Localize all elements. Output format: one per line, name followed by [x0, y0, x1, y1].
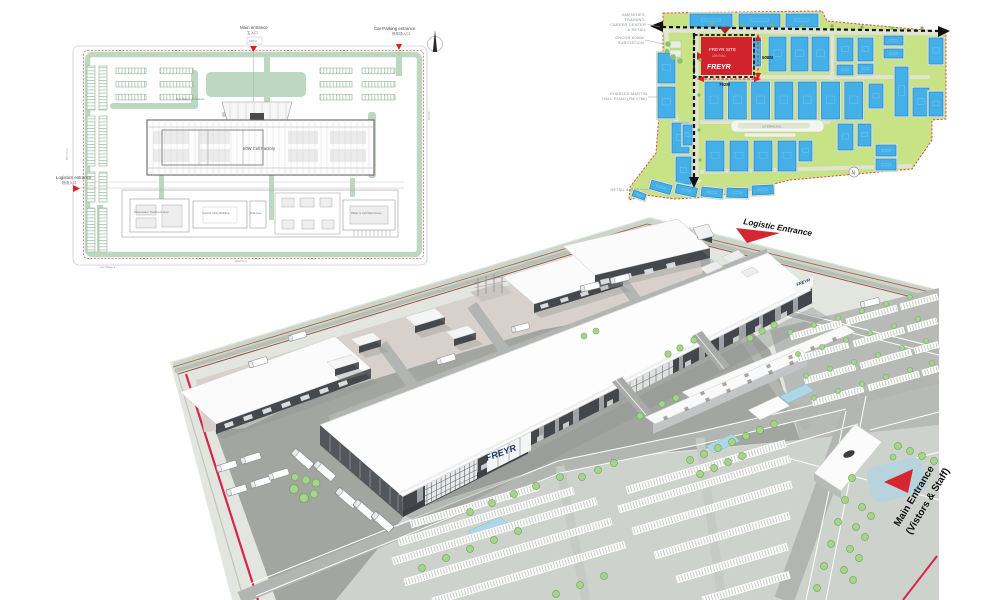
svg-text:507.00 m: 507.00 m	[65, 148, 69, 160]
svg-text:Central Utility Building: Central Utility Building	[202, 211, 230, 215]
svg-text:Car Parking entrance: Car Parking entrance	[374, 26, 416, 31]
svg-text:RETAIL & GAS: RETAIL & GAS	[610, 187, 639, 192]
svg-text:100m: 100m	[249, 39, 257, 43]
svg-text:Logistics entrance: Logistics entrance	[56, 175, 92, 180]
svg-text:167.00: 167.00	[427, 111, 431, 120]
svg-text:INTERMODAL: INTERMODAL	[762, 125, 782, 129]
svg-text:Bus Station of Operato: Bus Station of Operato	[176, 97, 205, 101]
svg-text:HALL ROAD (FM 1786): HALL ROAD (FM 1786)	[602, 96, 647, 101]
svg-text:762M: 762M	[719, 82, 730, 87]
svg-text:Bulk Gas: Bulk Gas	[250, 211, 262, 215]
svg-text:xxx Phase 1: xxx Phase 1	[100, 265, 116, 269]
svg-text:FREYR: FREYR	[707, 64, 731, 71]
svg-text:50W Cell Factory: 50W Cell Factory	[243, 146, 276, 151]
svg-text:FREYR SITE: FREYR SITE	[709, 47, 736, 52]
svg-text:物流入口: 物流入口	[62, 180, 77, 185]
svg-text:100.9 AC: 100.9 AC	[712, 54, 727, 58]
svg-text:508M: 508M	[762, 55, 773, 60]
svg-text:SUBSTATION: SUBSTATION	[618, 40, 644, 45]
svg-text:946.00 m: 946.00 m	[235, 259, 247, 263]
svg-text:N: N	[852, 171, 856, 177]
svg-text:Wastewater Treatment Area: Wastewater Treatment Area	[134, 210, 169, 214]
svg-text:Water & Cell Warehouse: Water & Cell Warehouse	[351, 211, 382, 215]
svg-text:Main entrance: Main entrance	[240, 25, 268, 30]
svg-text:& RETAIL: & RETAIL	[627, 27, 646, 32]
svg-text:主入口: 主入口	[247, 30, 258, 35]
svg-text:停车场入口: 停车场入口	[392, 31, 410, 36]
